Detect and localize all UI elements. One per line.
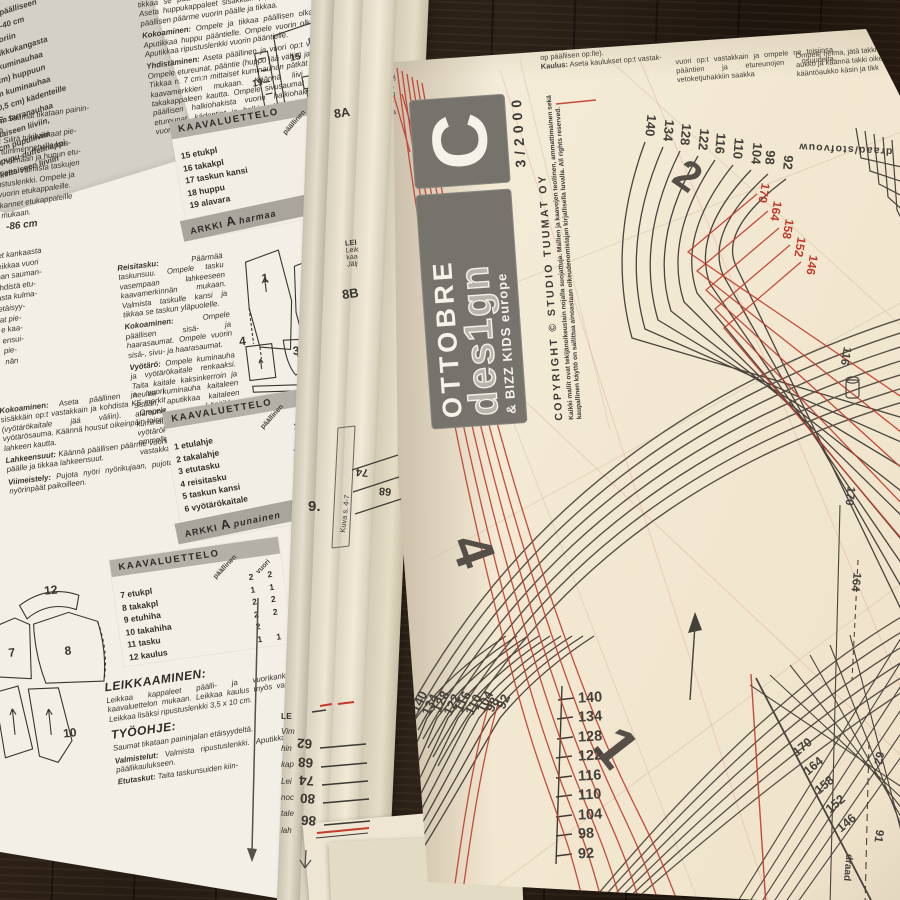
cutting-diagram-jacket: 7 8 10 12 xyxy=(0,520,134,773)
spine-size-label: 74 xyxy=(356,465,369,478)
spine-size-label: 68 xyxy=(297,754,313,770)
size-label: 164 xyxy=(848,572,862,593)
size-note: -86 cm xyxy=(5,218,38,233)
piece2-chevrons xyxy=(622,142,900,628)
spine-size-label: 62 xyxy=(296,735,312,751)
sheet-letter-c: C xyxy=(409,94,511,189)
spine-size-label: 86 xyxy=(300,812,316,828)
size-label: 140 xyxy=(578,689,603,706)
size-label: 98 xyxy=(762,150,778,166)
size-label: 128 xyxy=(677,123,694,146)
sheet-section-8a: 8A xyxy=(333,105,351,121)
size-label: 110 xyxy=(730,137,747,159)
section-9: 9. xyxy=(308,498,321,515)
spine-size-label: 68 xyxy=(379,484,392,497)
piece-number: 1 xyxy=(261,271,270,286)
size-label: 128 xyxy=(578,728,603,745)
pattern-list-3: KAAVALUETTELO päällinen vuori 7 etukpl22… xyxy=(109,537,292,667)
bottom-instruction-column: Kokoaminen: Aseta päällinen ja vuori sis… xyxy=(0,386,175,499)
spine-size-label: 74 xyxy=(298,772,314,788)
piece-number: 4 xyxy=(238,334,247,349)
magazine-photo: babycordaa päälliseen 35-35-35-40-40 cm … xyxy=(0,0,900,900)
button-icon xyxy=(846,377,859,398)
instruction-fragment-block: HJE: Saumat tikataan painin- lyltä. lut:… xyxy=(0,96,155,222)
size-label: 170 xyxy=(842,486,856,507)
piece-number: 15 xyxy=(289,51,302,64)
cut-fragment-column: leet kankaasta Leikkaa vuori man sauman-… xyxy=(0,237,125,368)
size-label: 140 xyxy=(642,114,659,137)
size-label: 116 xyxy=(578,767,602,784)
size-label: 104 xyxy=(578,806,603,823)
ottobre-logo-block: OTTOBRE des1gn & BIZZ KIDS europe C 3/20… xyxy=(409,86,632,429)
size-label: 134 xyxy=(660,119,677,142)
size-label: 91 xyxy=(871,829,885,844)
size-label: 92 xyxy=(780,155,796,171)
size-label: 122 xyxy=(695,128,712,151)
size-label: 92 xyxy=(578,846,595,863)
sheet-section-8b: 8B xyxy=(341,285,360,302)
edge-fragment-column: LE Vim hin kap Lei noc tale lah xyxy=(281,708,295,839)
size-label: 110 xyxy=(578,786,602,803)
size-label: 134 xyxy=(578,708,603,725)
grainline-arrow xyxy=(688,612,702,700)
piece-number: 12 xyxy=(43,582,58,597)
piece-number: 8 xyxy=(64,643,72,658)
spine-size-label: 80 xyxy=(299,790,315,806)
piece-number: 10 xyxy=(62,725,77,740)
piece-number: 7 xyxy=(8,645,16,660)
size-label: 122 xyxy=(578,747,603,764)
size-label: 62 xyxy=(871,751,885,766)
piece-number: 19 xyxy=(251,77,263,90)
size-label: 116 xyxy=(712,132,729,154)
size-label: 98 xyxy=(578,826,595,843)
logo-main-box: OTTOBRE des1gn & BIZZ KIDS europe xyxy=(415,188,527,429)
diagram-outlines xyxy=(0,587,116,768)
